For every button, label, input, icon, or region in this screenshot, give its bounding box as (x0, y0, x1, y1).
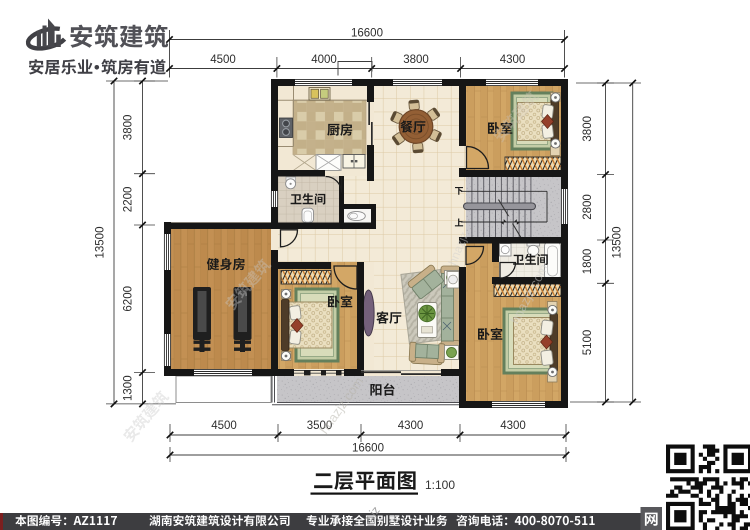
svg-text:3800: 3800 (123, 115, 135, 141)
svg-text:4500: 4500 (211, 420, 237, 432)
svg-text:4500: 4500 (210, 54, 236, 66)
svg-text:13500: 13500 (95, 227, 107, 259)
svg-text:2800: 2800 (582, 194, 594, 220)
svg-text:13500: 13500 (612, 227, 624, 259)
svg-text:2200: 2200 (123, 187, 135, 213)
svg-text:4300: 4300 (398, 420, 424, 432)
svg-text:4300: 4300 (500, 54, 526, 66)
svg-text:3800: 3800 (403, 54, 429, 66)
svg-text:1300: 1300 (123, 375, 135, 401)
svg-text:4300: 4300 (500, 420, 526, 432)
svg-text:1800: 1800 (582, 249, 594, 275)
svg-text:4000: 4000 (311, 54, 337, 66)
svg-text:16600: 16600 (351, 28, 383, 40)
svg-text:6200: 6200 (123, 286, 135, 312)
svg-text:3800: 3800 (582, 116, 594, 142)
svg-text:16600: 16600 (352, 443, 384, 455)
svg-text:5100: 5100 (582, 330, 594, 356)
svg-text:1:100: 1:100 (425, 478, 455, 492)
